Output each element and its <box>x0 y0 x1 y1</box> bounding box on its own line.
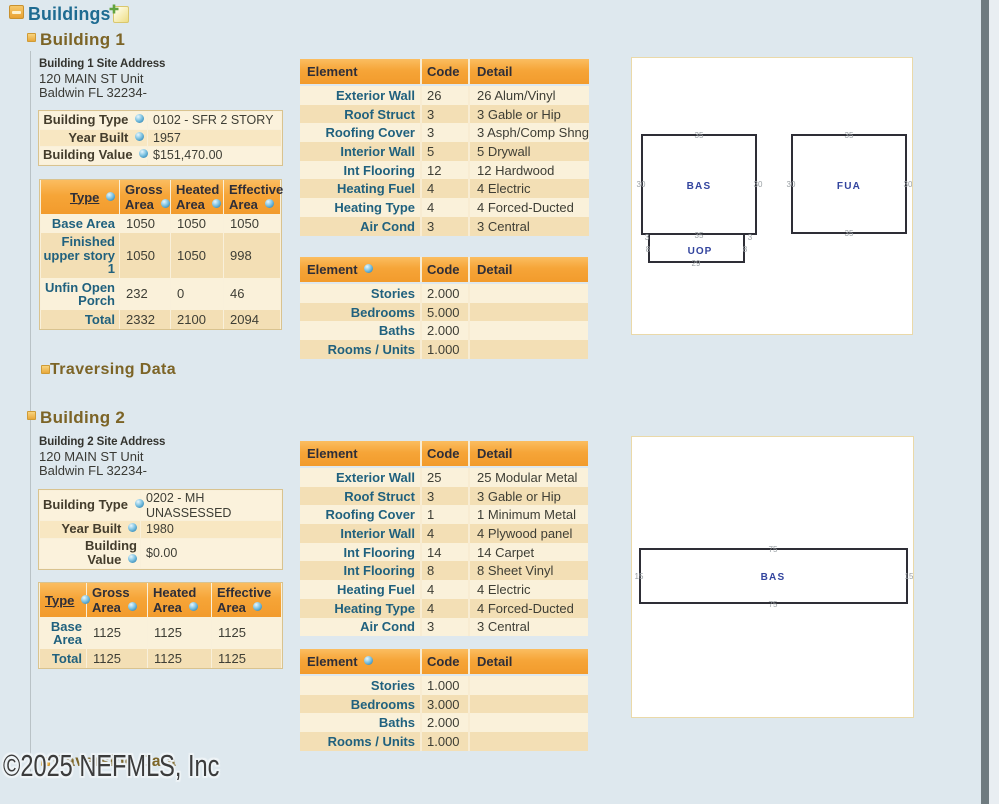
svg-text:3: 3 <box>645 233 650 242</box>
svg-text:30: 30 <box>754 180 763 189</box>
svg-text:BAS: BAS <box>761 572 786 583</box>
svg-text:75: 75 <box>769 545 778 554</box>
svg-text:15: 15 <box>905 572 913 581</box>
svg-text:30: 30 <box>904 180 912 189</box>
svg-text:29: 29 <box>692 259 701 268</box>
svg-text:8: 8 <box>646 245 651 254</box>
svg-text:30: 30 <box>637 180 646 189</box>
svg-text:75: 75 <box>769 600 778 609</box>
svg-text:30: 30 <box>787 180 796 189</box>
svg-text:3: 3 <box>748 233 753 242</box>
svg-text:BAS: BAS <box>687 181 712 192</box>
svg-text:FUA: FUA <box>837 181 861 192</box>
svg-text:35: 35 <box>695 231 704 240</box>
svg-text:35: 35 <box>845 229 854 238</box>
svg-text:35: 35 <box>695 131 704 140</box>
svg-text:35: 35 <box>845 131 854 140</box>
svg-text:UOP: UOP <box>688 246 713 257</box>
svg-text:8: 8 <box>743 245 748 254</box>
svg-text:15: 15 <box>635 572 644 581</box>
